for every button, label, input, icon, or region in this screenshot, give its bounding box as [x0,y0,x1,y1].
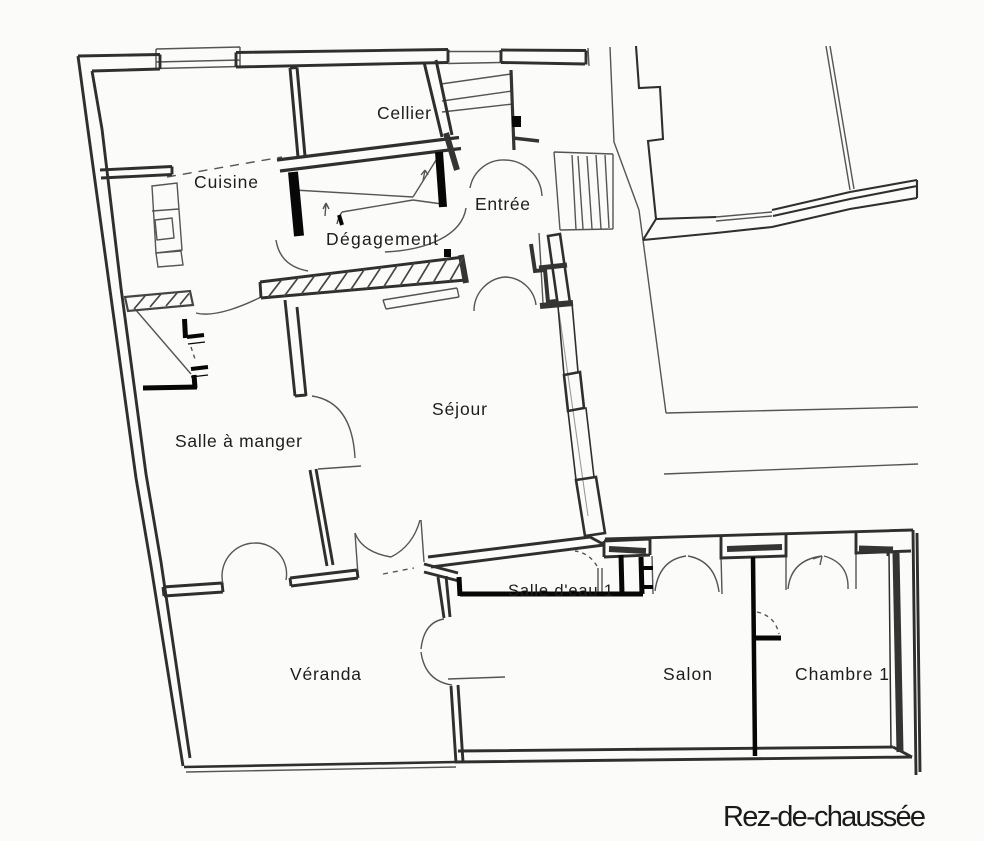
svg-text:Chambre 1: Chambre 1 [795,664,889,684]
svg-text:Entrée: Entrée [475,194,530,214]
svg-text:Séjour: Séjour [432,399,487,419]
svg-text:Rez-de-chaussée: Rez-de-chaussée [723,801,926,833]
svg-text:Salon: Salon [663,664,712,684]
svg-text:Salle à manger: Salle à manger [175,431,302,451]
svg-text:Véranda: Véranda [290,664,361,684]
svg-text:Cellier: Cellier [377,103,431,123]
svg-text:Salle d'eau 1: Salle d'eau 1 [508,582,613,600]
svg-text:Dégagement: Dégagement [326,229,438,249]
svg-text:Cuisine: Cuisine [194,172,258,192]
